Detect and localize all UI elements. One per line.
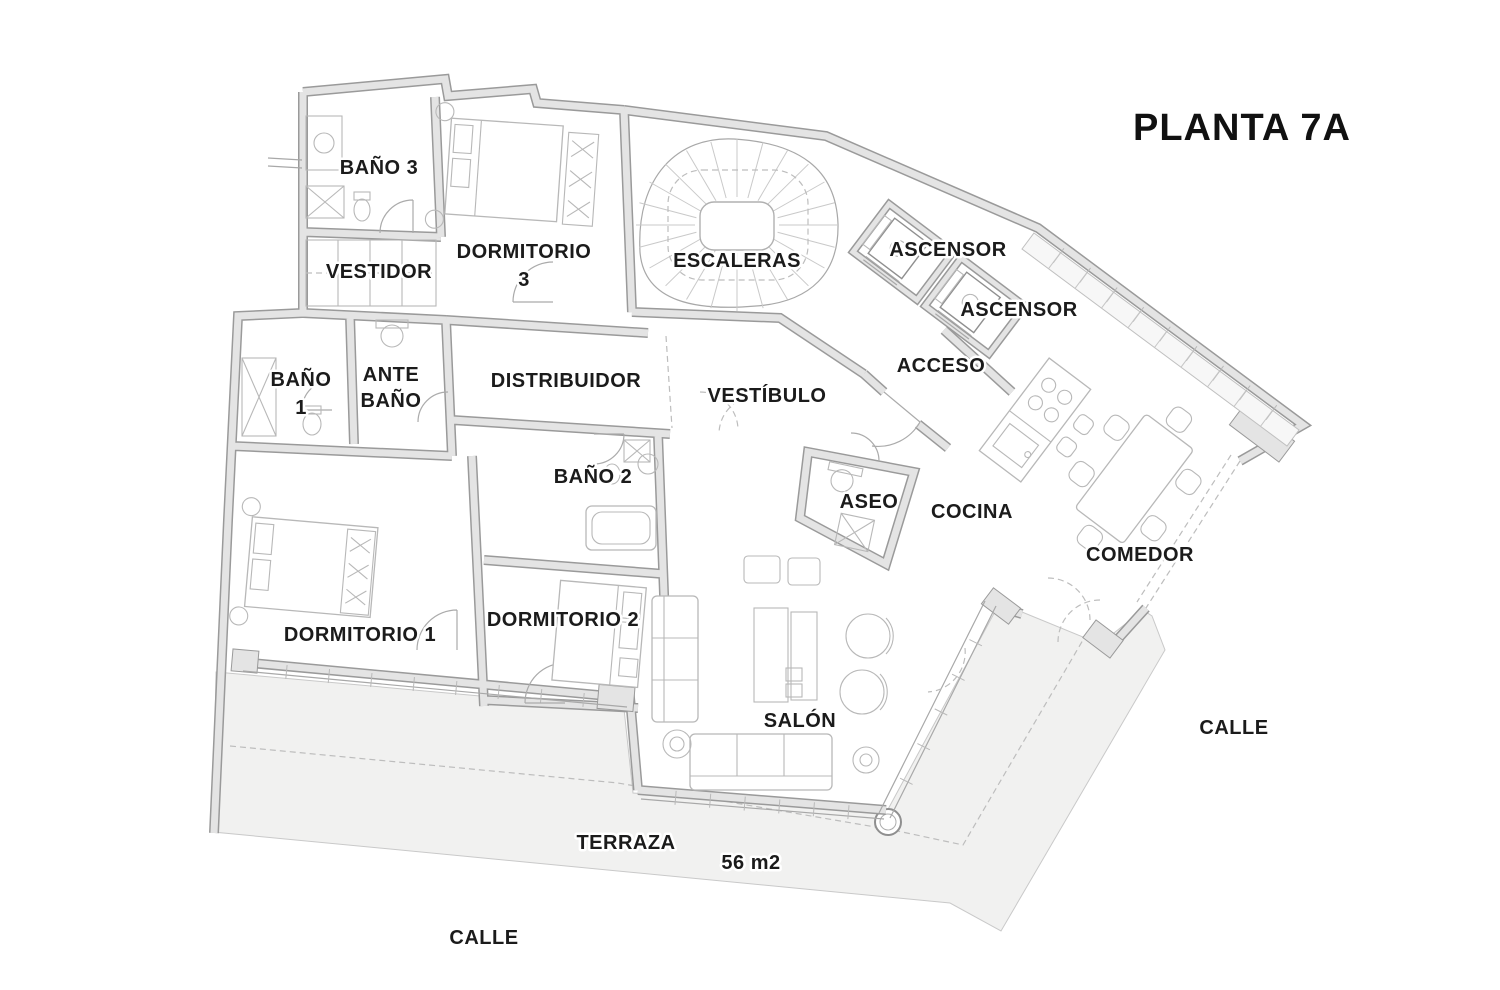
label-bano3: BAÑO 3 xyxy=(340,156,419,179)
label-escaleras: ESCALERAS xyxy=(673,250,801,272)
pier-dorm-step xyxy=(597,684,635,711)
bano3-toilet xyxy=(354,199,370,221)
floor-plan-page: PLANTA 7A BAÑO 3 DORMITORIO 3 VESTIDOR E… xyxy=(0,0,1500,990)
plant-2-inner xyxy=(860,754,872,766)
console-1 xyxy=(744,556,780,583)
sofa-left xyxy=(652,596,698,722)
dormitorio1-furniture xyxy=(229,497,380,637)
sofa-bottom xyxy=(690,734,832,790)
label-dormitorio3-2: 3 xyxy=(518,269,530,291)
label-antebano-2: BAÑO xyxy=(361,389,422,412)
stair-core xyxy=(700,202,774,250)
stair-tread-line xyxy=(687,151,717,201)
door-antebano xyxy=(418,392,448,422)
bed-2 xyxy=(552,580,646,687)
label-distribuidor: DISTRIBUIDOR xyxy=(491,370,642,392)
floor-plan-canvas: PLANTA 7A BAÑO 3 DORMITORIO 3 VESTIDOR E… xyxy=(0,0,1500,990)
flue-lines xyxy=(268,158,302,168)
plant-1 xyxy=(663,730,691,758)
bed-3 xyxy=(445,118,563,222)
plan-title: PLANTA 7A xyxy=(1133,107,1351,149)
label-vestidor: VESTIDOR xyxy=(326,261,432,283)
label-terraza-area: 56 m2 xyxy=(721,852,780,874)
bano2-fixtures xyxy=(586,440,658,550)
dormitorio3-furniture xyxy=(425,102,600,239)
label-ascensor-1: ASCENSOR xyxy=(889,239,1006,261)
stair-tread-line xyxy=(758,151,788,201)
label-dormitorio2: DORMITORIO 2 xyxy=(487,609,639,631)
plant-2 xyxy=(853,747,879,773)
coffee-table-2 xyxy=(791,612,817,700)
bano3-shower-x xyxy=(306,186,344,218)
nightstand-1a xyxy=(242,497,262,517)
label-ascensor-2: ASCENSOR xyxy=(960,299,1077,321)
label-cocina: COCINA xyxy=(931,501,1013,523)
label-vestibulo: VESTÍBULO xyxy=(708,384,827,407)
label-dormitorio1: DORMITORIO 1 xyxy=(284,624,436,646)
wardrobe-3-x xyxy=(567,141,594,218)
label-bano2: BAÑO 2 xyxy=(554,465,633,488)
pier-dorm1-window xyxy=(231,649,259,673)
label-terraza: TERRAZA xyxy=(576,832,675,854)
label-dormitorio3-1: DORMITORIO xyxy=(457,241,592,263)
stair-tread-line xyxy=(650,182,701,211)
label-bano1-2: 1 xyxy=(295,397,307,419)
label-aseo: ASEO xyxy=(840,491,899,513)
label-calle-right: CALLE xyxy=(1199,717,1268,739)
bano3-sink xyxy=(314,133,334,153)
bano3-counter xyxy=(306,116,342,170)
door-bano2 xyxy=(594,434,624,464)
dining-table xyxy=(1075,414,1194,544)
aseo-sink xyxy=(829,468,855,494)
plant-1-inner xyxy=(670,737,684,751)
staircase xyxy=(636,139,838,311)
stair-tread-line xyxy=(778,203,835,218)
bano2-tub xyxy=(586,506,656,550)
stool-2 xyxy=(1055,435,1079,459)
bano2-shower-x xyxy=(624,440,650,462)
stair-tread-line xyxy=(773,182,824,211)
coffee-table-1 xyxy=(754,608,788,702)
label-calle-bottom: CALLE xyxy=(449,927,518,949)
nightstand-1b xyxy=(229,606,249,626)
label-bano1-1: BAÑO xyxy=(271,368,332,391)
label-antebano-1: ANTE xyxy=(363,364,419,386)
door-acceso xyxy=(872,392,920,446)
salon-furniture xyxy=(652,556,893,790)
stair-tread-line xyxy=(778,232,835,247)
bed-1 xyxy=(245,517,378,618)
stool-1 xyxy=(1072,413,1096,437)
opening-distribuidor xyxy=(666,336,672,428)
armchair-2 xyxy=(840,670,884,714)
label-acceso: ACCESO xyxy=(897,355,986,377)
door-bano3 xyxy=(380,200,413,233)
label-salon: SALÓN xyxy=(764,708,837,732)
label-comedor: COMEDOR xyxy=(1086,544,1194,566)
armchair-1 xyxy=(846,614,890,658)
dormitorio2-furniture xyxy=(552,580,646,687)
console-2 xyxy=(788,558,820,585)
